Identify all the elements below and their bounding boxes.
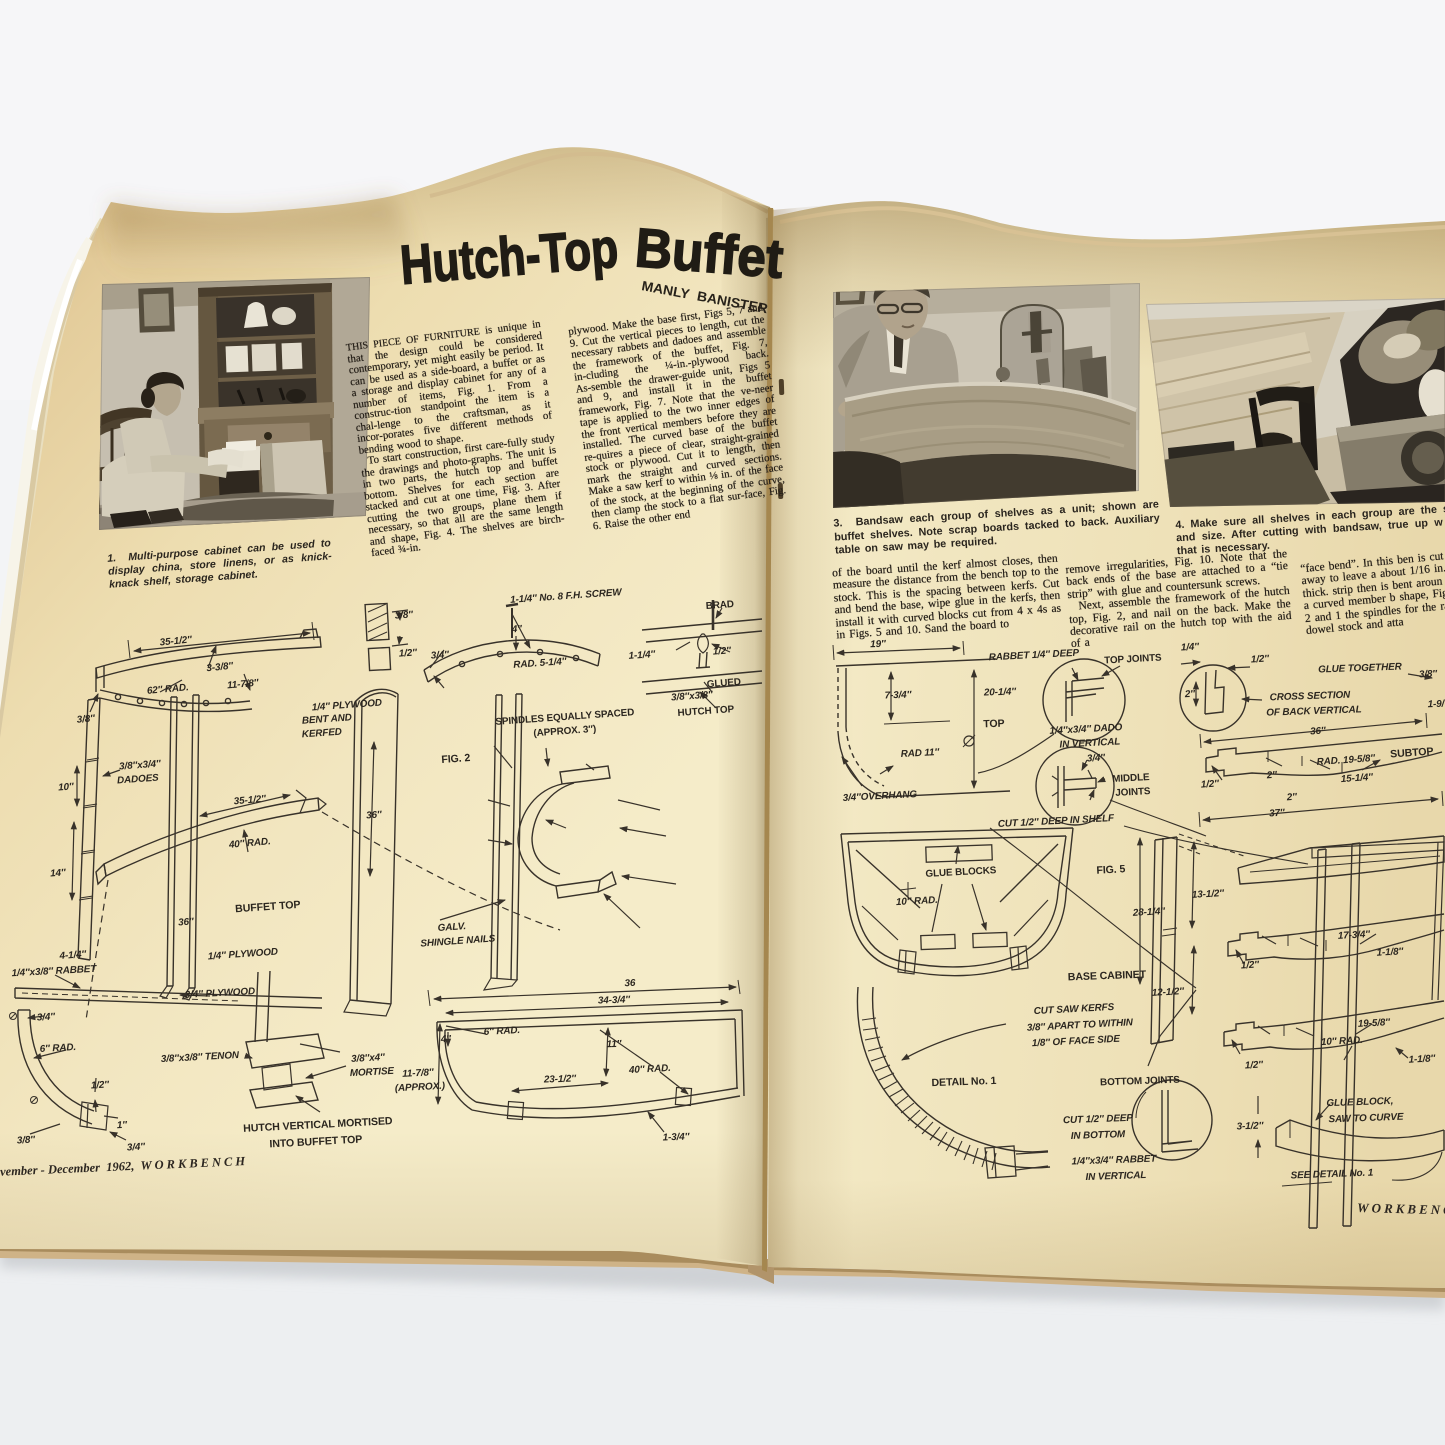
svg-text:WORKBENC: WORKBENC (1357, 1200, 1445, 1218)
svg-text:Buffet: Buffet (633, 216, 785, 290)
svg-text:Hutch-Top: Hutch-Top (398, 217, 620, 296)
svg-text:ovember - December 1962, WOR: ovember - December 1962, WORKBENCH (0, 1154, 248, 1179)
